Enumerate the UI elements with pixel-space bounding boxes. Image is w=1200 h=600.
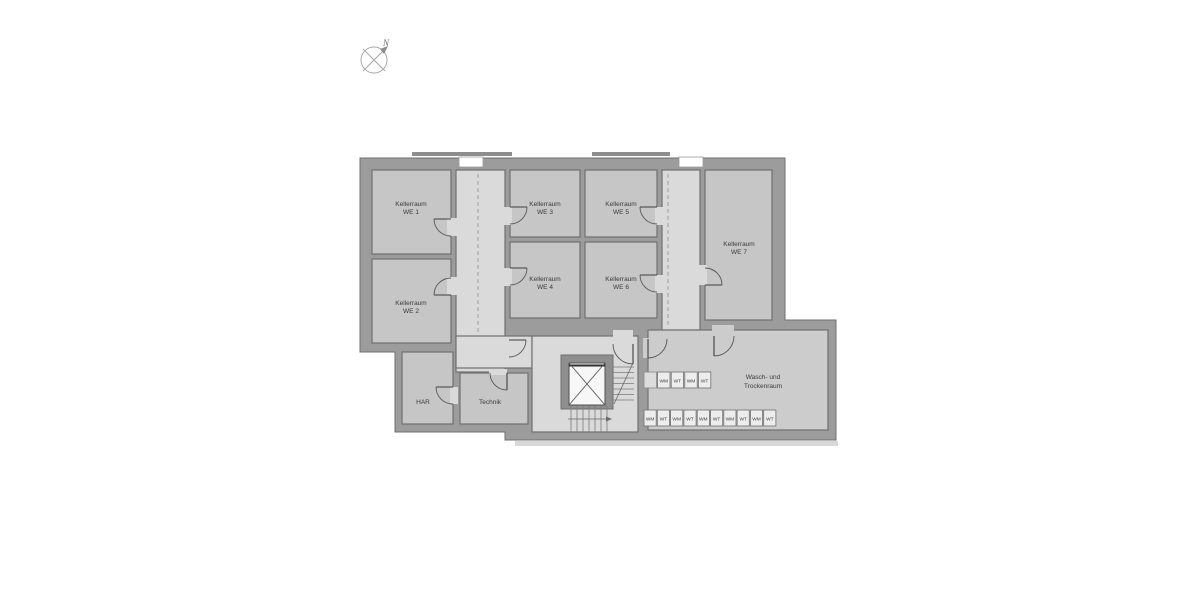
door-gap-we3 xyxy=(503,207,512,225)
machine: WM xyxy=(724,410,736,426)
label-we3-line1: Kellerraum xyxy=(529,201,560,208)
label-we5-line1: Kellerraum xyxy=(605,201,636,208)
door-gap-we1 xyxy=(447,218,457,236)
machine-label: WT xyxy=(660,417,668,423)
exterior-lintel-right xyxy=(592,152,670,156)
label-technik: Technik xyxy=(479,399,502,406)
door-gap-we5 xyxy=(655,207,664,225)
machine-label: WT xyxy=(701,379,709,385)
machine-label: WT xyxy=(674,379,682,385)
machine: WM xyxy=(671,410,683,426)
exterior-lintel-left xyxy=(412,152,512,156)
machine-row-top: WM WT WM WT xyxy=(644,372,711,388)
label-we3-line2: WE 3 xyxy=(537,209,553,216)
machine: WM xyxy=(658,372,670,388)
machine-label: WM xyxy=(646,417,655,423)
label-we6-line2: WE 6 xyxy=(613,284,629,291)
label-we6-line1: Kellerraum xyxy=(605,276,636,283)
machine: WT xyxy=(671,372,683,388)
machine: WM xyxy=(750,410,762,426)
label-we7-line1: Kellerraum xyxy=(723,241,754,248)
machine: WT xyxy=(698,372,710,388)
compass-icon: N xyxy=(361,38,390,73)
door-gap-we2 xyxy=(447,277,457,295)
label-we5-line2: WE 5 xyxy=(613,209,629,216)
label-waschraum-line2: Trockenraum xyxy=(744,383,782,390)
machine-blank-box xyxy=(644,372,656,388)
machine-label: WM xyxy=(687,379,696,385)
door-gap-we4 xyxy=(503,268,512,286)
machine: WM xyxy=(697,410,709,426)
machine-label: WM xyxy=(699,417,708,423)
machine-label: WT xyxy=(766,417,774,423)
door-gap-hall xyxy=(613,330,633,337)
machine: WT xyxy=(684,410,696,426)
machine: WT xyxy=(711,410,723,426)
label-we4-line2: WE 4 xyxy=(537,284,553,291)
door-gap-technik xyxy=(489,369,507,375)
elevator xyxy=(561,355,613,409)
machine-label: WT xyxy=(686,417,694,423)
label-we1-line2: WE 1 xyxy=(403,209,419,216)
window-left-corridor xyxy=(459,157,483,167)
floorplan-page: N xyxy=(0,0,1200,600)
floorplan-canvas: N xyxy=(0,0,1200,600)
label-waschraum-line1: Wasch- und xyxy=(746,374,781,381)
machine: WT xyxy=(657,410,669,426)
machine-label: WT xyxy=(739,417,747,423)
door-gap-waschraum xyxy=(712,325,734,332)
corridor-right xyxy=(662,170,700,330)
machine: WT xyxy=(737,410,749,426)
machine-label: WM xyxy=(726,417,735,423)
door-gap-lobby xyxy=(643,338,650,358)
label-we2-line2: WE 2 xyxy=(403,308,419,315)
machine: WT xyxy=(764,410,776,426)
compass-north-label: N xyxy=(382,38,390,48)
machine: WM xyxy=(685,372,697,388)
window-right-corridor xyxy=(679,157,703,167)
machine-label: WM xyxy=(752,417,761,423)
exterior-step xyxy=(515,441,838,446)
machine-label: WM xyxy=(672,417,681,423)
label-we1-line1: Kellerraum xyxy=(395,201,426,208)
machine: WM xyxy=(644,410,656,426)
door-gap-har xyxy=(450,387,458,404)
label-we7-line2: WE 7 xyxy=(731,249,747,256)
door-gap-we6 xyxy=(655,275,664,293)
label-har: HAR xyxy=(416,399,430,406)
room-har xyxy=(402,352,453,424)
machine-label: WM xyxy=(660,379,669,385)
label-we4-line1: Kellerraum xyxy=(529,276,560,283)
label-we2-line1: Kellerraum xyxy=(395,300,426,307)
machine-label: WT xyxy=(713,417,721,423)
